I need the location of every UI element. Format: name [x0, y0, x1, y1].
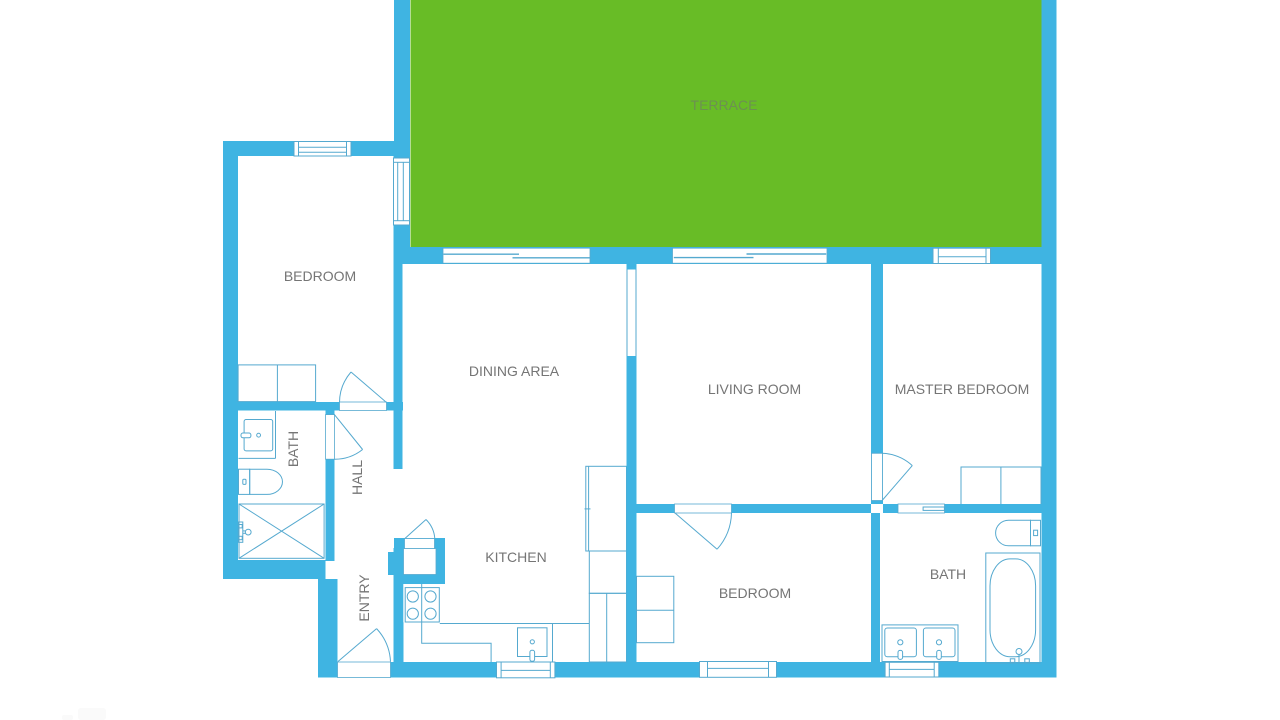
- svg-text:BEDROOM: BEDROOM: [719, 585, 791, 601]
- svg-text:DINING AREA: DINING AREA: [469, 363, 560, 379]
- svg-text:TERRACE: TERRACE: [691, 97, 758, 113]
- svg-text:MASTER BEDROOM: MASTER BEDROOM: [895, 381, 1030, 397]
- svg-text:BATH: BATH: [285, 431, 301, 467]
- svg-text:HALL: HALL: [349, 460, 365, 495]
- svg-text:ENTRY: ENTRY: [356, 574, 372, 622]
- svg-text:BEDROOM: BEDROOM: [284, 268, 356, 284]
- svg-text:BATH: BATH: [930, 566, 966, 582]
- svg-text:LIVING ROOM: LIVING ROOM: [708, 381, 801, 397]
- svg-text:KITCHEN: KITCHEN: [485, 549, 546, 565]
